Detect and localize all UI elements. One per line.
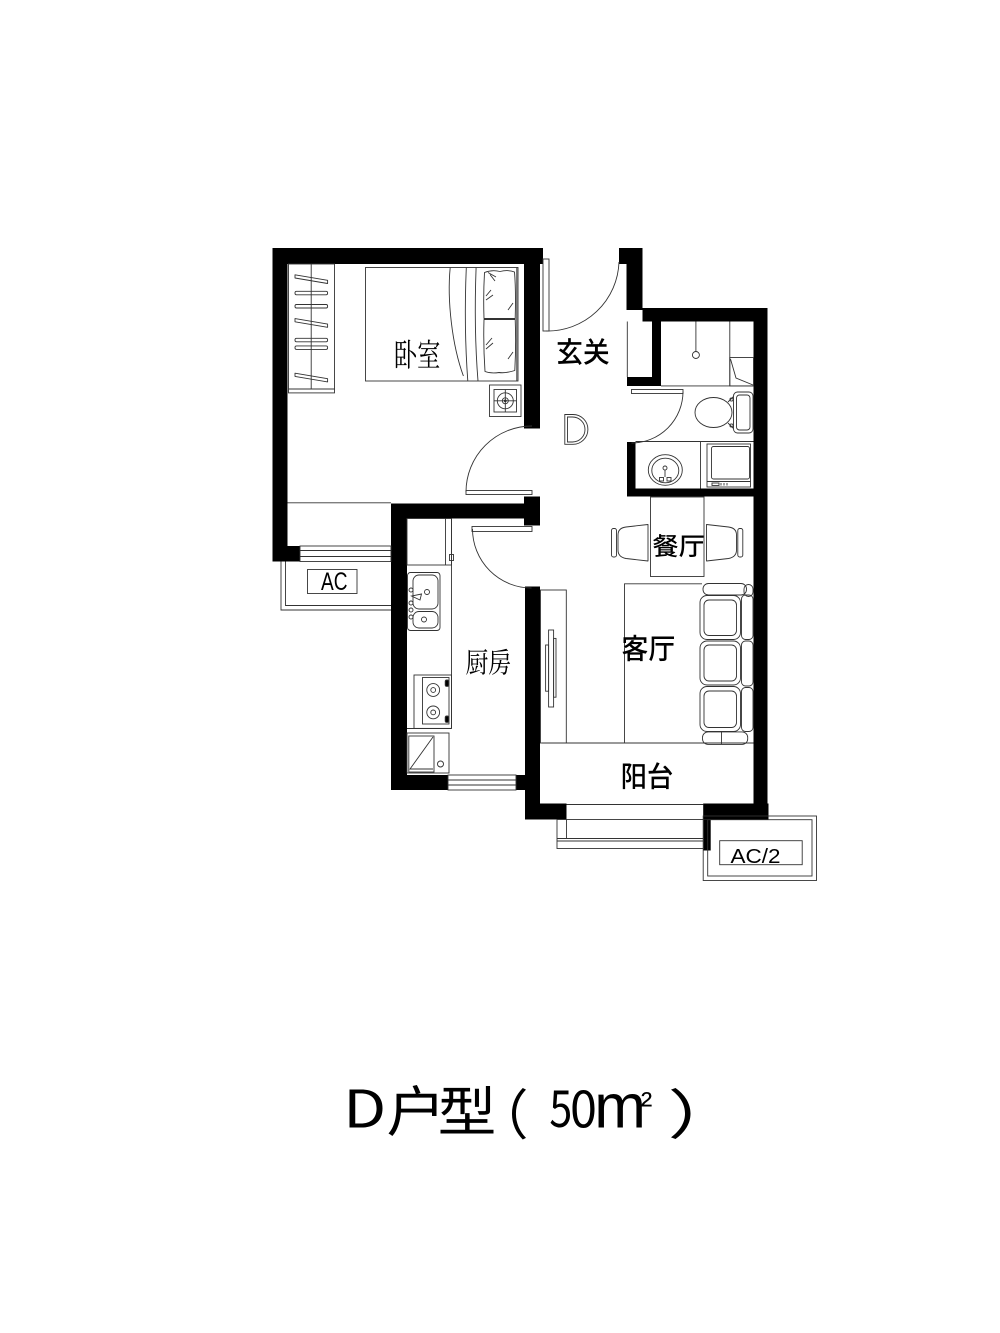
svg-text:m: m: [594, 1073, 646, 1142]
svg-text:AC/2: AC/2: [731, 845, 781, 868]
svg-text:AC: AC: [321, 568, 348, 596]
svg-text:²: ²: [641, 1086, 653, 1124]
